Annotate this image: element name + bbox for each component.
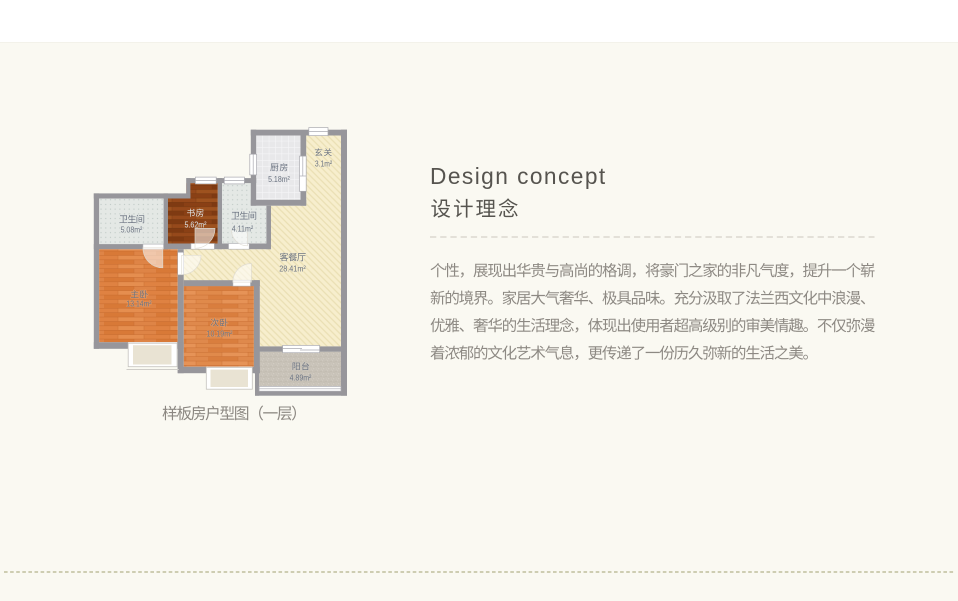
svg-text:13.14m²: 13.14m²: [126, 299, 151, 309]
svg-text:10.19m²: 10.19m²: [207, 329, 233, 339]
svg-text:28.41m²: 28.41m²: [279, 264, 306, 274]
svg-text:5.62m²: 5.62m²: [185, 220, 207, 230]
svg-text:5.18m²: 5.18m²: [268, 174, 290, 184]
svg-text:Design concept: Design concept: [430, 163, 607, 189]
svg-text:4.11m²: 4.11m²: [232, 224, 254, 234]
svg-text:3.1m²: 3.1m²: [315, 159, 332, 169]
svg-text:4.89m²: 4.89m²: [290, 373, 312, 383]
svg-text:5.08m²: 5.08m²: [121, 225, 143, 235]
